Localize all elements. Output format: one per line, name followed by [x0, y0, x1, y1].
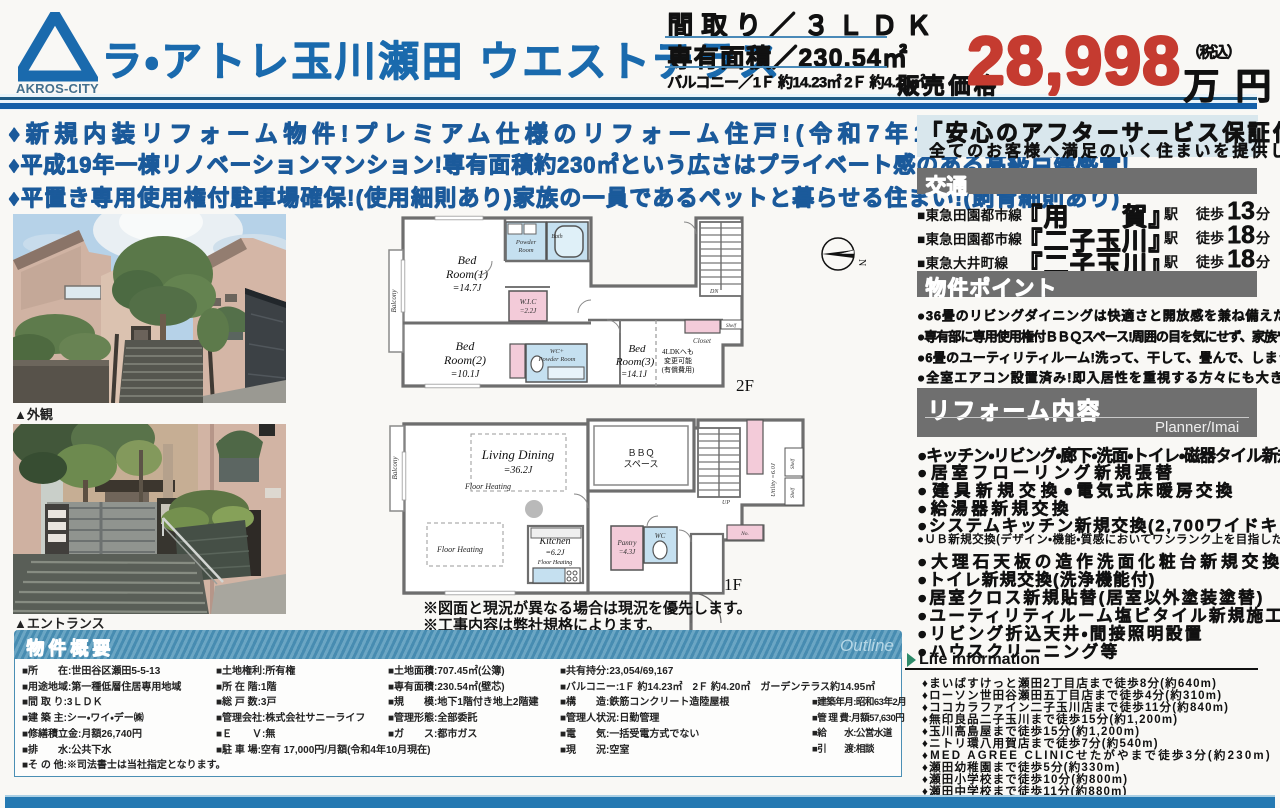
svg-text:Room: Room	[517, 247, 533, 254]
svg-text:=36.2J: =36.2J	[504, 465, 533, 476]
svg-text:N: N	[856, 259, 867, 266]
svg-text:Shelf: Shelf	[791, 487, 796, 498]
svg-text:WC: WC	[655, 532, 666, 540]
svg-text:DN: DN	[709, 289, 719, 295]
svg-text:=6.2J: =6.2J	[546, 548, 565, 557]
svg-text:Bath: Bath	[551, 234, 562, 240]
svg-text:=10.1J: =10.1J	[451, 369, 480, 380]
svg-text:(有償費用): (有償費用)	[662, 365, 695, 374]
svg-text:Closet: Closet	[693, 337, 712, 345]
svg-text:※図面と現況が異なる場合は現況を優先します。: ※図面と現況が異なる場合は現況を優先します。	[423, 599, 752, 617]
svg-text:Living Dining: Living Dining	[481, 447, 555, 462]
svg-text:ＢＢＱ: ＢＢＱ	[627, 448, 654, 458]
svg-text:No.: No.	[740, 531, 749, 537]
svg-text:Bed: Bed	[628, 343, 646, 355]
svg-text:1F: 1F	[724, 575, 742, 594]
svg-text:Balcony: Balcony	[391, 456, 399, 480]
svg-text:変更可能: 変更可能	[664, 356, 692, 365]
svg-text:Balcony: Balcony	[390, 289, 398, 313]
svg-text:Powder: Powder	[515, 239, 537, 246]
svg-text:=14.1J: =14.1J	[621, 369, 648, 379]
svg-text:WC+: WC+	[550, 348, 564, 355]
svg-text:Floor Heating: Floor Heating	[436, 545, 483, 554]
svg-text:Pantry: Pantry	[616, 539, 637, 547]
svg-text:Bed: Bed	[456, 339, 476, 353]
svg-text:=2.2J: =2.2J	[520, 307, 537, 315]
svg-text:Shelf: Shelf	[791, 458, 796, 469]
svg-text:Powder Room: Powder Room	[537, 356, 575, 363]
svg-text:Room(1): Room(1)	[445, 267, 488, 281]
svg-text:UP: UP	[722, 500, 730, 506]
svg-text:2F: 2F	[736, 376, 754, 395]
svg-text:4LDKへも: 4LDKへも	[662, 348, 694, 356]
svg-text:スペース: スペース	[624, 459, 659, 469]
svg-text:Floor Heating: Floor Heating	[464, 482, 511, 491]
svg-text:Room(3): Room(3)	[615, 356, 655, 368]
svg-text:=14.7J: =14.7J	[453, 283, 482, 294]
svg-text:Utility =6.0J: Utility =6.0J	[770, 462, 777, 497]
svg-text:Floor Heating: Floor Heating	[537, 560, 573, 566]
svg-text:Bed: Bed	[458, 253, 478, 267]
svg-text:W.I.C: W.I.C	[520, 297, 538, 306]
svg-text:Room(2): Room(2)	[443, 353, 486, 367]
svg-text:=4.3J: =4.3J	[619, 548, 636, 556]
svg-text:Shelf: Shelf	[726, 324, 737, 329]
